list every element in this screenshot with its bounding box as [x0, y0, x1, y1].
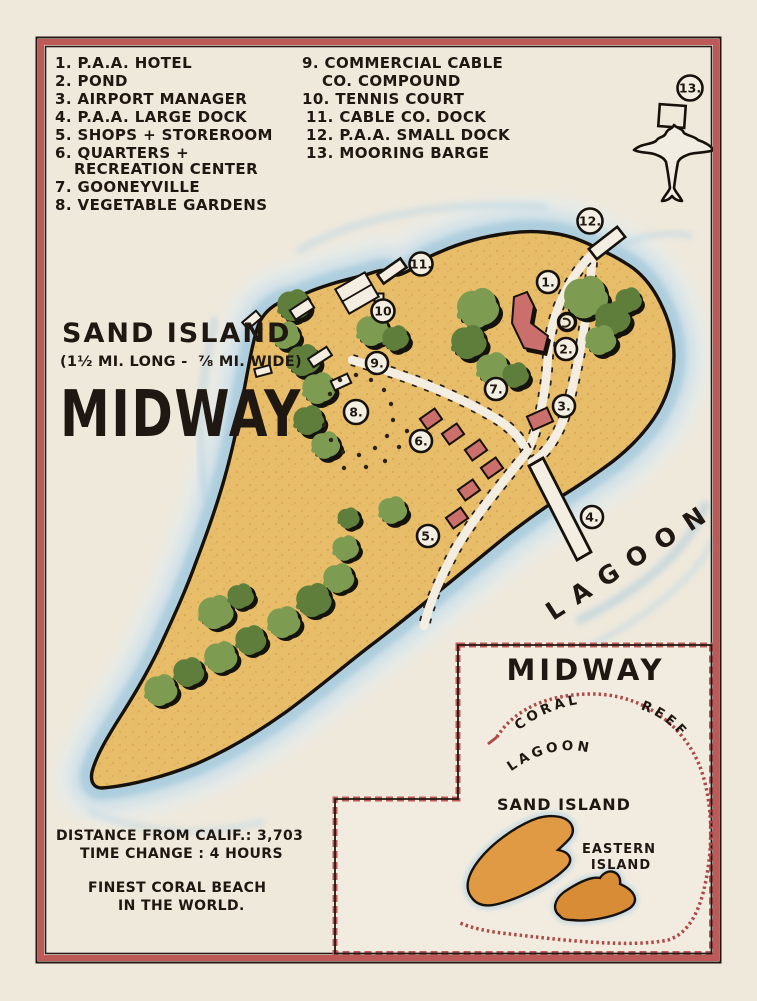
- legend-item: 9. COMMERCIAL CABLE: [302, 54, 503, 72]
- note-distance: DISTANCE FROM CALIF.: 3,703: [56, 828, 303, 844]
- svg-text:6.: 6.: [414, 433, 427, 448]
- island-subtitle: (1½ MI. LONG - ⅞ MI. WIDE): [60, 354, 302, 370]
- legend-item: 11. CABLE CO. DOCK: [306, 108, 487, 126]
- island-titles: SAND ISLAND (1½ MI. LONG - ⅞ MI. WIDE) M…: [60, 318, 302, 452]
- marker-13-mooring-barge: 13.: [678, 76, 703, 101]
- svg-text:12.: 12.: [579, 214, 601, 229]
- marker-11-cable-dock: 11.: [410, 253, 433, 276]
- midway-map-page: 1. 2. 3. 4. 5. 6. 7. 8. 9. 10 11. 12. 13…: [0, 0, 757, 1001]
- svg-text:11.: 11.: [410, 256, 432, 271]
- svg-text:1.: 1.: [541, 274, 554, 289]
- pond: [559, 314, 576, 331]
- legend-item: 12. P.A.A. SMALL DOCK: [306, 126, 511, 144]
- svg-text:4.: 4.: [585, 509, 598, 524]
- inset-eastern-island-label-cont: ISLAND: [591, 858, 651, 873]
- marker-9-cable-compound: 9.: [366, 352, 388, 374]
- island-name-midway: MIDWAY: [60, 377, 302, 452]
- inset-title: MIDWAY: [506, 653, 665, 687]
- legend-item-cont: RECREATION CENTER: [74, 160, 258, 178]
- marker-3-airport-manager: 3.: [553, 395, 575, 417]
- map-canvas: 1. 2. 3. 4. 5. 6. 7. 8. 9. 10 11. 12. 13…: [0, 0, 757, 1001]
- svg-text:5.: 5.: [421, 528, 434, 543]
- marker-4-large-dock: 4.: [581, 506, 603, 528]
- island-title: SAND ISLAND: [62, 318, 291, 349]
- marker-2-pond: 2.: [555, 338, 577, 360]
- legend-item: 7. GOONEYVILLE: [55, 178, 200, 196]
- svg-text:8.: 8.: [349, 404, 362, 419]
- legend-item: 2. POND: [55, 72, 128, 90]
- legend-item: 13. MOORING BARGE: [306, 144, 489, 162]
- note-time-change: TIME CHANGE : 4 HOURS: [80, 846, 283, 862]
- legend-item: 4. P.A.A. LARGE DOCK: [55, 108, 248, 126]
- legend-item: 1. P.A.A. HOTEL: [55, 54, 192, 72]
- marker-7-gooneyville: 7.: [485, 378, 507, 400]
- inset-eastern-island-label: EASTERN: [582, 842, 656, 857]
- legend-item: 8. VEGETABLE GARDENS: [55, 196, 267, 214]
- marker-5-shops: 5.: [417, 525, 439, 547]
- marker-8-gardens: 8.: [344, 400, 368, 424]
- svg-text:3.: 3.: [557, 398, 570, 413]
- svg-text:9.: 9.: [370, 355, 383, 370]
- inset-sand-island-label: SAND ISLAND: [497, 795, 631, 814]
- marker-6-quarters: 6.: [410, 430, 432, 452]
- svg-text:2.: 2.: [559, 341, 572, 356]
- note-coral-beach: FINEST CORAL BEACH: [88, 880, 266, 896]
- legend-item: 5. SHOPS + STOREROOM: [55, 126, 273, 144]
- svg-text:7.: 7.: [489, 381, 502, 396]
- note-coral-beach-cont: IN THE WORLD.: [118, 898, 245, 914]
- legend-item: 10. TENNIS COURT: [302, 90, 465, 108]
- marker-10-tennis-court: 10: [372, 300, 395, 323]
- legend-item: 3. AIRPORT MANAGER: [55, 90, 247, 108]
- svg-text:10: 10: [374, 303, 392, 318]
- legend-item-cont: CO. COMPOUND: [322, 72, 461, 90]
- svg-text:13.: 13.: [679, 81, 701, 96]
- marker-1-hotel: 1.: [537, 271, 559, 293]
- marker-12-small-dock: 12.: [578, 209, 603, 234]
- mooring-barge-symbol: [658, 104, 685, 128]
